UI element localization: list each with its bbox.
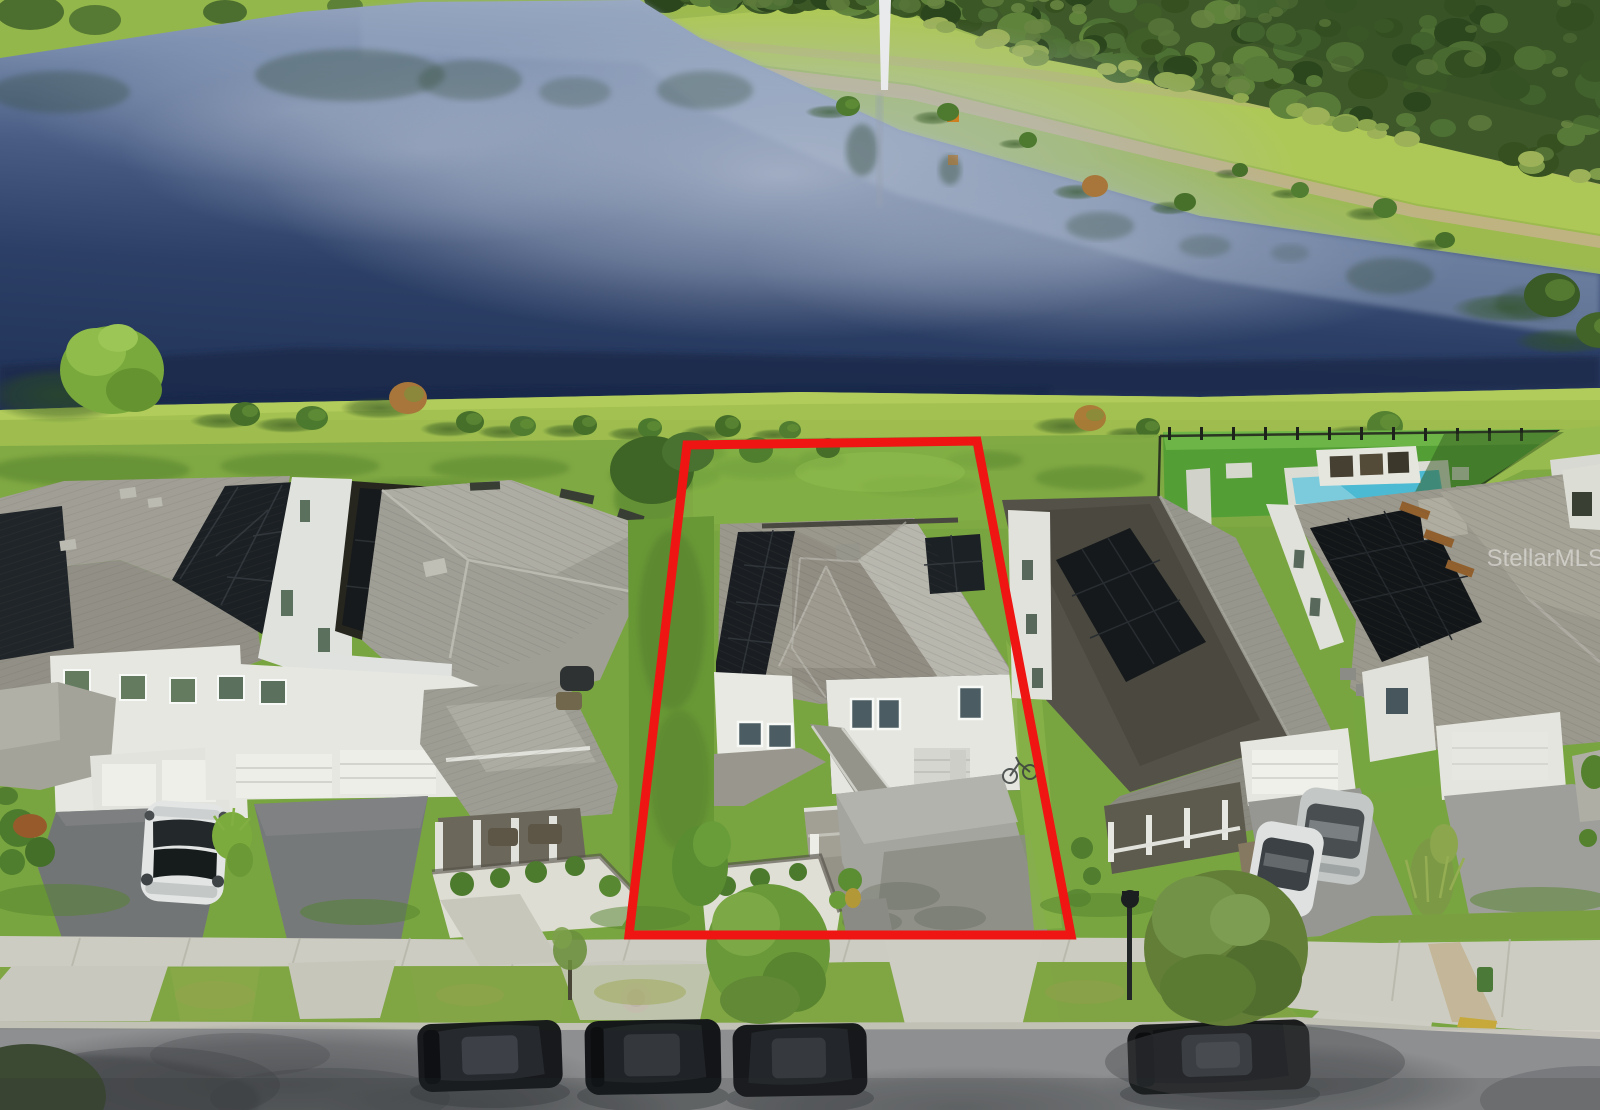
svg-text:StellarMLS: StellarMLS	[1487, 545, 1600, 572]
